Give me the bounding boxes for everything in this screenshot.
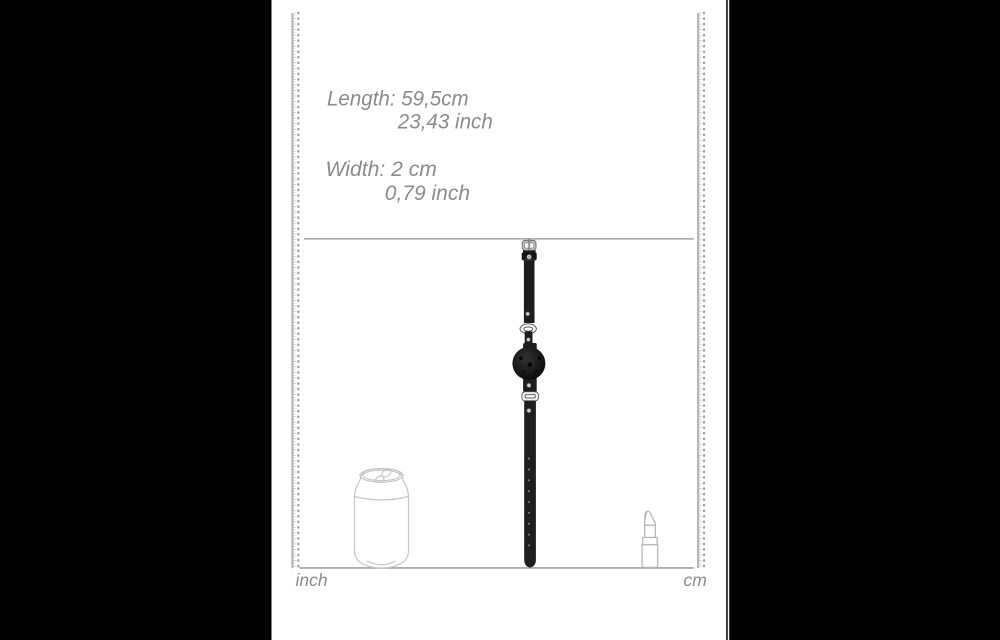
svg-text:cm: cm xyxy=(684,570,707,590)
svg-text:Length: 59,5cm: Length: 59,5cm xyxy=(327,87,469,110)
svg-text:23,43 inch: 23,43 inch xyxy=(397,111,493,134)
svg-text:inch: inch xyxy=(296,570,328,590)
svg-text:Width: 2 cm: Width: 2 cm xyxy=(326,158,437,181)
svg-text:0,79 inch: 0,79 inch xyxy=(385,182,470,205)
